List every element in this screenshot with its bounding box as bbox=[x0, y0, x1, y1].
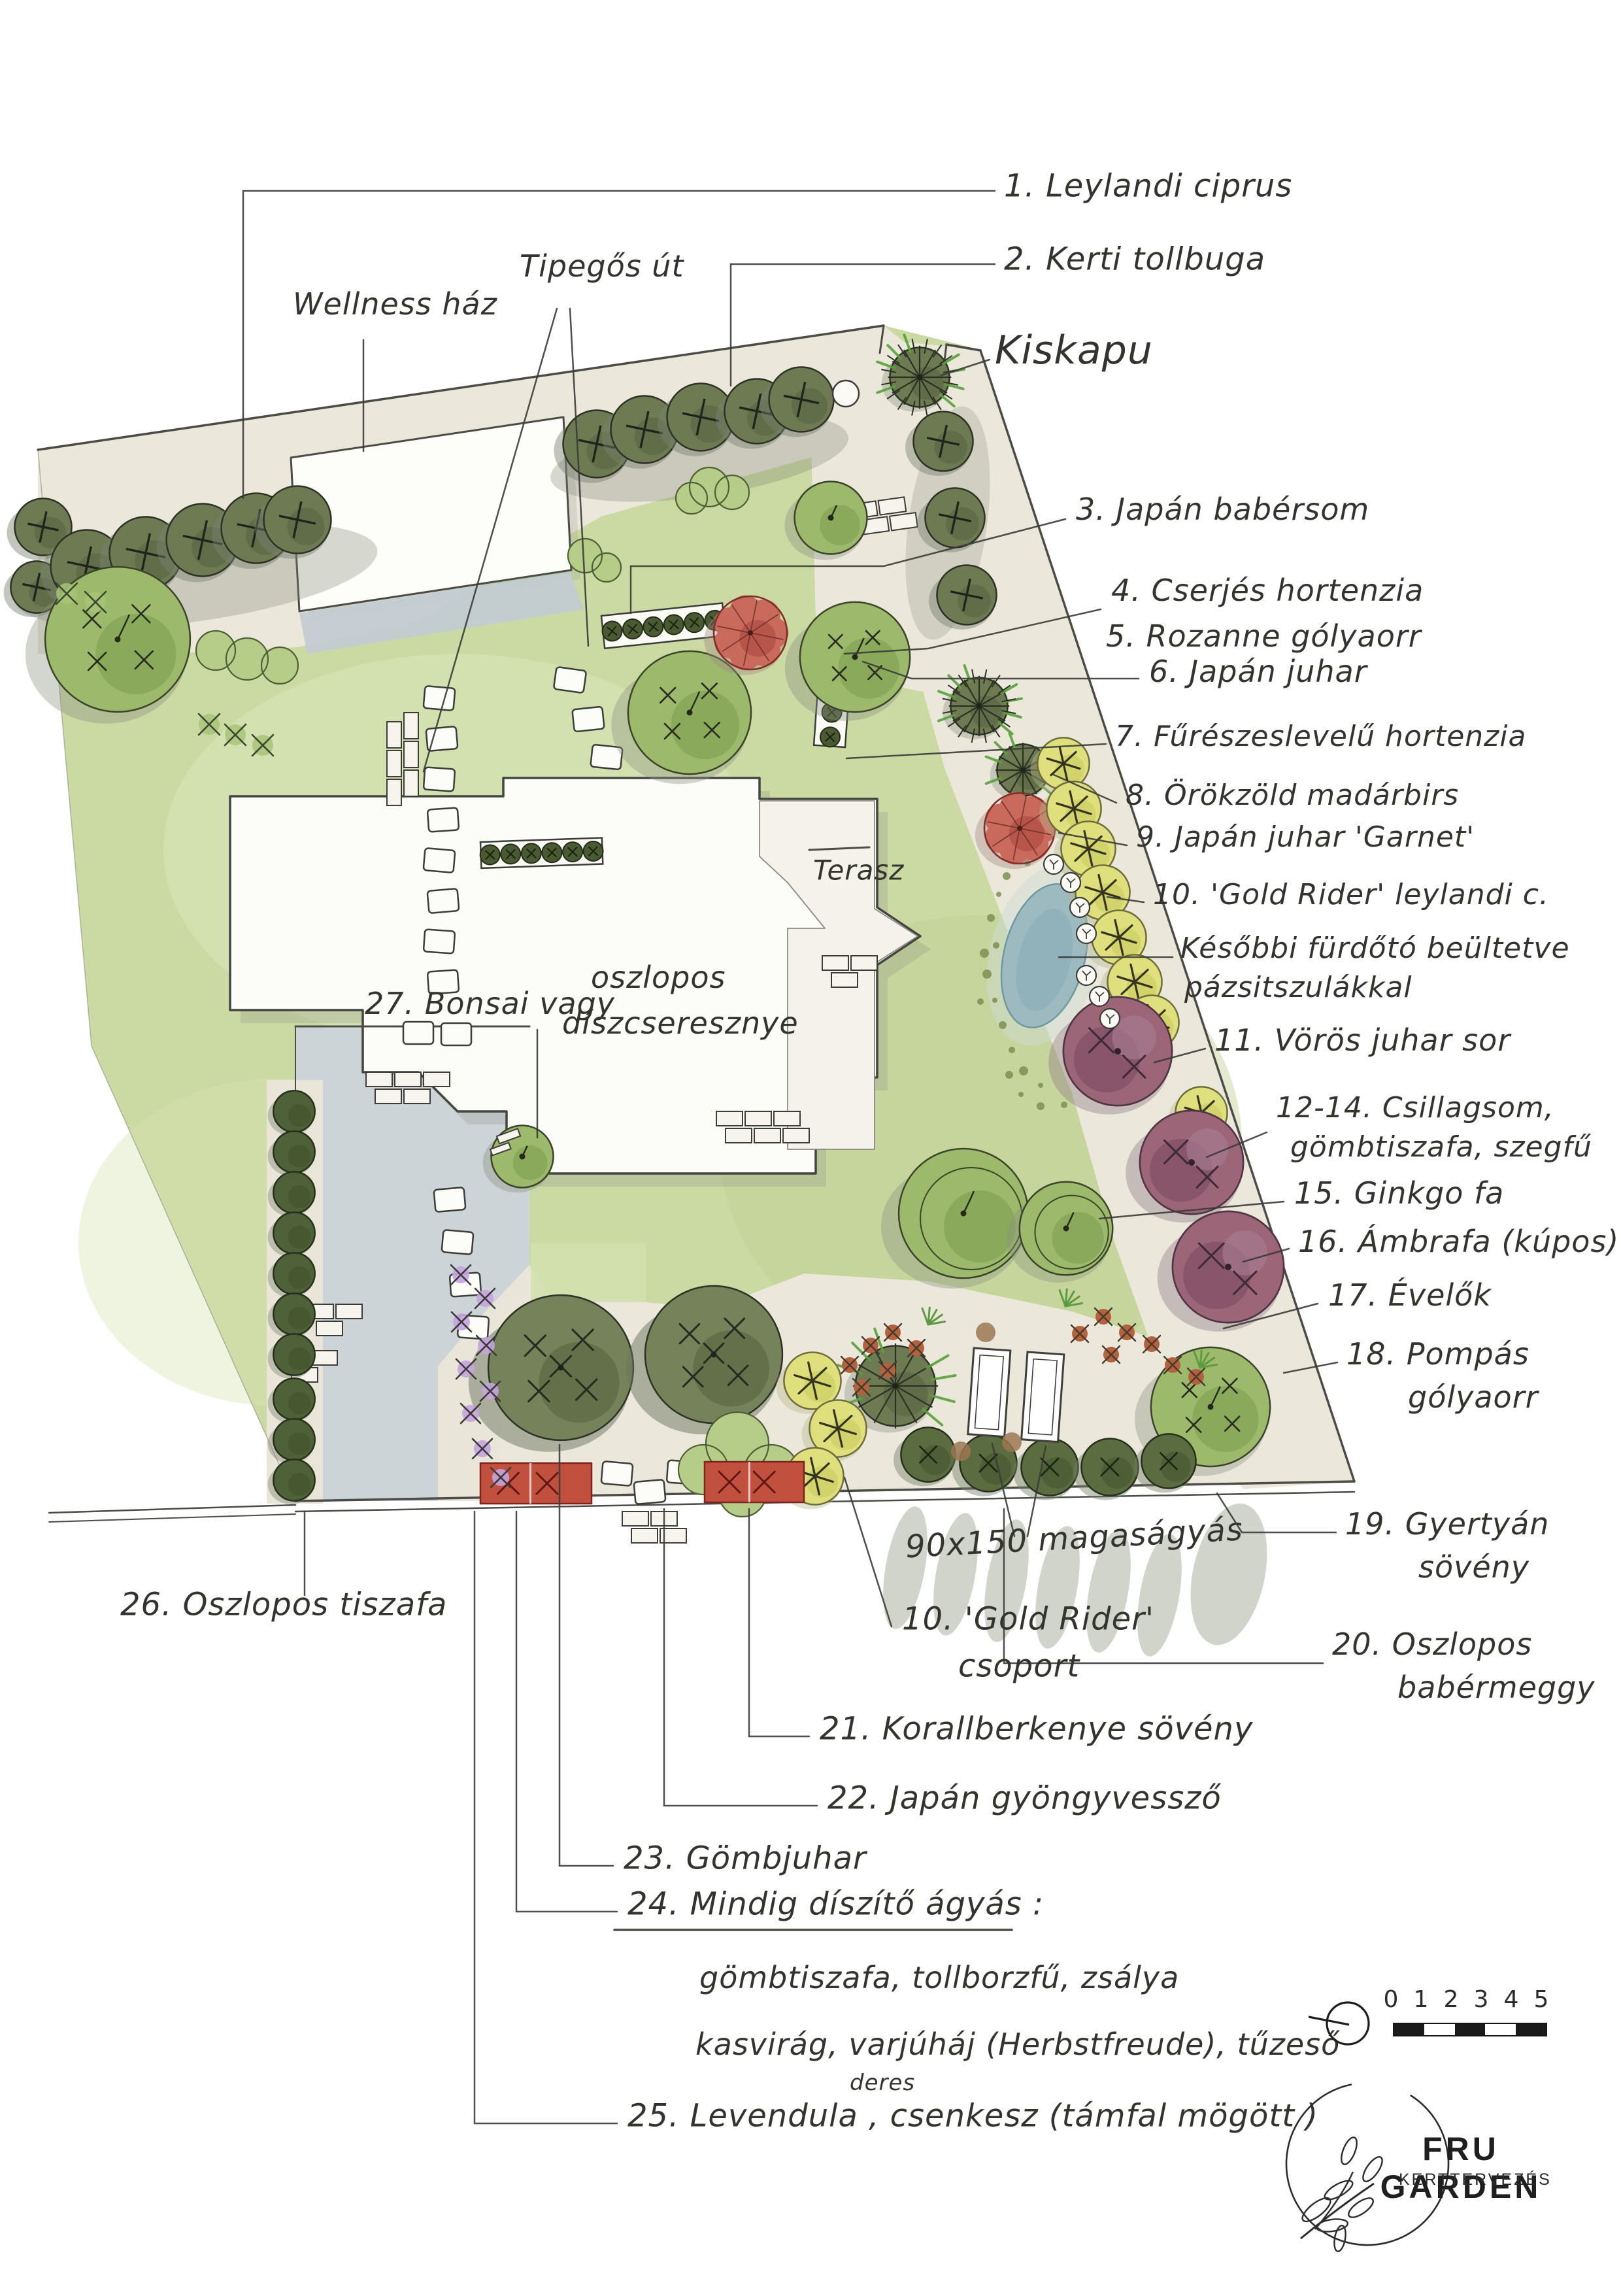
scale-bar-segment bbox=[1516, 2024, 1546, 2035]
scale-bar-segment bbox=[1485, 2024, 1515, 2035]
plan-label-kiskapu: Kiskapu bbox=[995, 328, 1153, 373]
plan-label-l10b: 10. 'Gold Rider' bbox=[902, 1600, 1154, 1637]
leader-line bbox=[560, 1445, 613, 1866]
plan-label-l24: 24. Mindig díszítő ágyás : bbox=[627, 1885, 1044, 1922]
gate-bulb bbox=[833, 380, 859, 407]
plan-label-l10c: csoport bbox=[958, 1647, 1080, 1684]
plan-label-l22: 22. Japán gyöngyvessző bbox=[827, 1780, 1222, 1816]
plan-label-l20b: babérmeggy bbox=[1397, 1670, 1596, 1705]
plan-label-l19b: sövény bbox=[1418, 1549, 1529, 1585]
plan-label-l24c: kasvirág, varjúháj (Herbstfreude), tűzes… bbox=[695, 2027, 1340, 2062]
plan-label-l4: 4. Cserjés hortenzia bbox=[1111, 573, 1424, 608]
plan-label-l12a: 12-14. Csillagsom, bbox=[1276, 1091, 1554, 1124]
hedge-planter bbox=[480, 837, 603, 868]
scale-tick: 5 bbox=[1528, 1986, 1554, 2013]
plan-label-l27b: oszlopos bbox=[591, 960, 726, 995]
plan-label-l5: 5. Rozanne gólyaorr bbox=[1106, 618, 1423, 654]
scale-bar-segment bbox=[1455, 2024, 1485, 2035]
plan-label-l25: 25. Levendula , csenkesz (támfal mögött … bbox=[627, 2097, 1318, 2134]
plan-label-l27c: díszcseresznye bbox=[562, 1005, 799, 1041]
scale-tick: 4 bbox=[1498, 1986, 1524, 2013]
scale-tick: 2 bbox=[1438, 1986, 1464, 2013]
plan-label-l23: 23. Gömbjuhar bbox=[624, 1840, 868, 1876]
leader-line bbox=[664, 1509, 817, 1806]
scale-bar-segment bbox=[1394, 2024, 1424, 2035]
leader-line bbox=[475, 1511, 617, 2123]
brand-logo: FRU GARDEN KERTTERVEZÉS bbox=[1276, 2074, 1577, 2270]
plan-label-l1: 1. Leylandi ciprus bbox=[1004, 167, 1292, 204]
plan-label-l6: 6. Japán juhar bbox=[1149, 654, 1369, 689]
plan-label-kesobbi2: pázsitszulákkal bbox=[1184, 971, 1412, 1004]
scale-bar-segment bbox=[1424, 2024, 1454, 2035]
plan-label-l21: 21. Korallberkenye sövény bbox=[820, 1710, 1253, 1747]
plan-label-terasz: Terasz bbox=[813, 854, 904, 886]
plan-label-l26: 26. Oszlopos tiszafa bbox=[120, 1586, 447, 1623]
logo-title: FRU GARDEN bbox=[1360, 2130, 1562, 2206]
scale-tick: 1 bbox=[1408, 1986, 1434, 2013]
plan-label-l19a: 19. Gyertyán bbox=[1345, 1506, 1549, 1542]
plan-label-l11: 11. Vörös juhar sor bbox=[1214, 1022, 1512, 1058]
plan-label-l7: 7. Fűrészeslevelű hortenzia bbox=[1115, 720, 1526, 753]
plan-label-tipegos: Tipegős út bbox=[520, 248, 684, 284]
scale-tick: 0 bbox=[1378, 1986, 1404, 2013]
plan-label-l24b: gömbtiszafa, tollborzfű, zsálya bbox=[699, 1960, 1179, 1995]
plan-label-l18a: 18. Pompás bbox=[1346, 1336, 1529, 1372]
compass-icon bbox=[1307, 1991, 1379, 2053]
leader-line bbox=[516, 1511, 617, 1912]
plan-label-l9: 9. Japán juhar 'Garnet' bbox=[1136, 820, 1475, 854]
plan-label-kesobbi1: Későbbi fürdőtó beültetve bbox=[1180, 932, 1570, 965]
scale-tick: 3 bbox=[1468, 1986, 1494, 2013]
garden-plan-drawing: 1. Leylandi ciprus2. Kerti tollbugaKiska… bbox=[0, 0, 1621, 2293]
plan-label-l20a: 20. Oszlopos bbox=[1332, 1627, 1532, 1662]
plan-label-l25b: deres bbox=[850, 2070, 915, 2096]
plan-label-l10: 10. 'Gold Rider' leylandi c. bbox=[1153, 878, 1549, 911]
plan-label-l15: 15. Ginkgo fa bbox=[1294, 1175, 1504, 1211]
plan-label-l3: 3. Japán babérsom bbox=[1076, 492, 1369, 527]
plan-label-l17: 17. Évelők bbox=[1328, 1277, 1492, 1313]
plan-label-l8: 8. Örökzöld madárbirs bbox=[1126, 778, 1459, 812]
plan-label-l12b: gömbtiszafa, szegfű bbox=[1290, 1130, 1592, 1164]
scale-bar-segments bbox=[1393, 2023, 1547, 2036]
plan-label-l16: 16. Ámbrafa (kúpos) bbox=[1298, 1224, 1619, 1259]
north-indicator bbox=[1307, 1991, 1379, 2053]
garden-plan-canvas: 1. Leylandi ciprus2. Kerti tollbugaKiska… bbox=[0, 0, 1621, 2293]
plan-label-l18b: gólyaorr bbox=[1408, 1379, 1540, 1415]
plan-label-l2: 2. Kerti tollbuga bbox=[1004, 241, 1265, 277]
scale-tick-labels: 0 1 2 3 4 5 bbox=[1376, 1986, 1559, 2012]
scale-bar: 0 1 2 3 4 5 bbox=[1376, 1986, 1559, 2045]
logo-subtitle: KERTTERVEZÉS bbox=[1399, 2170, 1529, 2189]
plan-label-wellness: Wellness ház bbox=[293, 286, 497, 322]
leader-line bbox=[749, 1509, 809, 1736]
